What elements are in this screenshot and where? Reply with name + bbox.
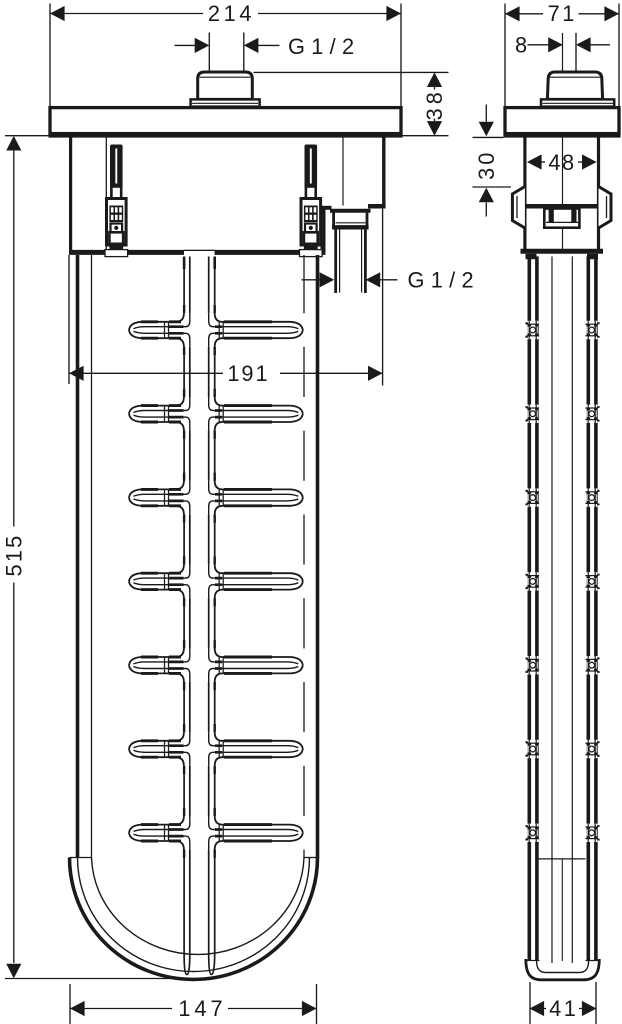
svg-text:147: 147: [178, 996, 226, 1021]
svg-text:41: 41: [549, 996, 578, 1021]
svg-text:191: 191: [227, 361, 269, 386]
svg-text:G1/2: G1/2: [288, 34, 360, 59]
svg-text:71: 71: [548, 1, 577, 26]
svg-text:214: 214: [208, 1, 255, 26]
svg-text:48: 48: [548, 150, 575, 175]
svg-text:30: 30: [474, 150, 499, 180]
svg-text:515: 515: [1, 534, 26, 577]
svg-text:8: 8: [515, 33, 527, 58]
svg-text:G1/2: G1/2: [408, 267, 480, 292]
svg-text:38: 38: [422, 88, 447, 120]
